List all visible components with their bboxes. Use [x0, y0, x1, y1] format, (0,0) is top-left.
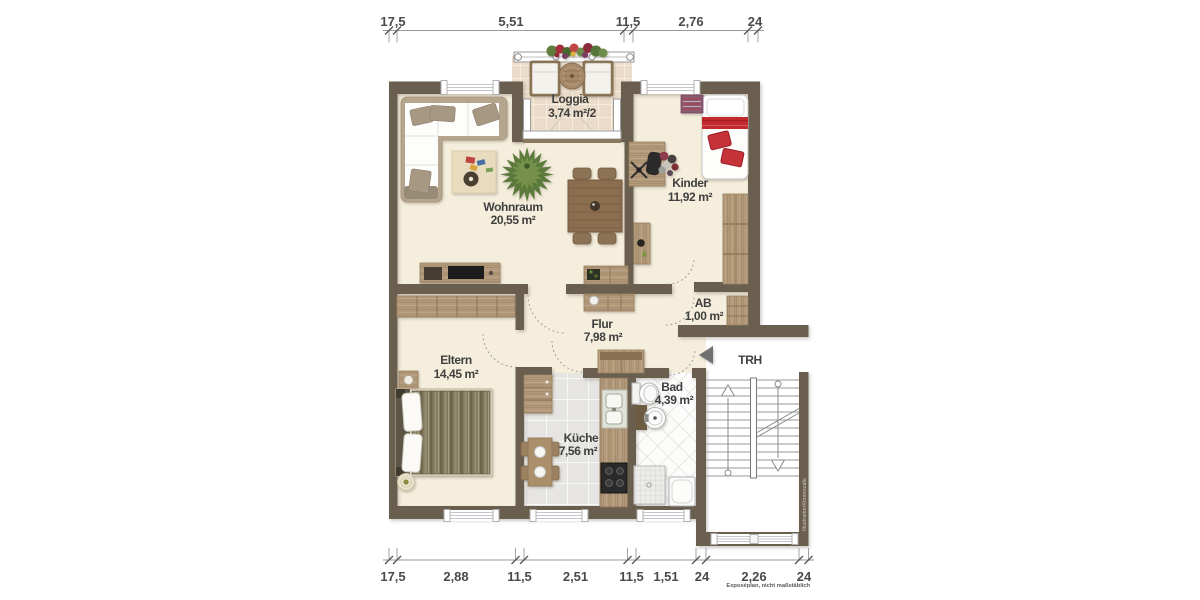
svg-text:Bad: Bad: [661, 380, 683, 394]
svg-text:17,5: 17,5: [380, 569, 405, 584]
svg-text:1,00 m²: 1,00 m²: [685, 309, 724, 323]
svg-text:5,51: 5,51: [498, 14, 523, 29]
svg-text:Illustration©immocafe: Illustration©immocafe: [801, 478, 808, 531]
svg-text:Wohnraum: Wohnraum: [483, 200, 542, 214]
svg-text:Flur: Flur: [591, 317, 613, 331]
svg-text:3,74 m²/2: 3,74 m²/2: [548, 106, 596, 120]
svg-text:2,88: 2,88: [443, 569, 468, 584]
svg-text:AB: AB: [695, 296, 712, 310]
svg-text:20,55 m²: 20,55 m²: [491, 213, 536, 227]
svg-text:7,56 m²: 7,56 m²: [559, 444, 598, 458]
svg-text:11,92 m²: 11,92 m²: [668, 190, 713, 204]
svg-text:11,5: 11,5: [616, 14, 641, 29]
svg-text:TRH: TRH: [738, 353, 761, 367]
svg-text:Exposéplan, nicht maßstäblich: Exposéplan, nicht maßstäblich: [726, 583, 810, 589]
svg-text:7,98 m²: 7,98 m²: [584, 330, 623, 344]
svg-text:17,5: 17,5: [380, 14, 405, 29]
svg-text:Küche: Küche: [564, 431, 599, 445]
svg-text:4,39 m²: 4,39 m²: [655, 393, 694, 407]
svg-text:11,5: 11,5: [619, 569, 644, 584]
svg-text:11,5: 11,5: [507, 569, 532, 584]
svg-text:24: 24: [797, 569, 812, 584]
svg-text:14,45 m²: 14,45 m²: [434, 367, 479, 381]
svg-text:1,51: 1,51: [653, 569, 678, 584]
svg-text:Eltern: Eltern: [440, 353, 472, 367]
svg-text:2,51: 2,51: [563, 569, 588, 584]
svg-text:24: 24: [748, 14, 763, 29]
svg-text:2,76: 2,76: [678, 14, 703, 29]
svg-text:Kinder: Kinder: [672, 176, 708, 190]
svg-text:24: 24: [695, 569, 710, 584]
svg-text:Loggia: Loggia: [552, 92, 590, 106]
svg-text:2,26: 2,26: [741, 569, 766, 584]
